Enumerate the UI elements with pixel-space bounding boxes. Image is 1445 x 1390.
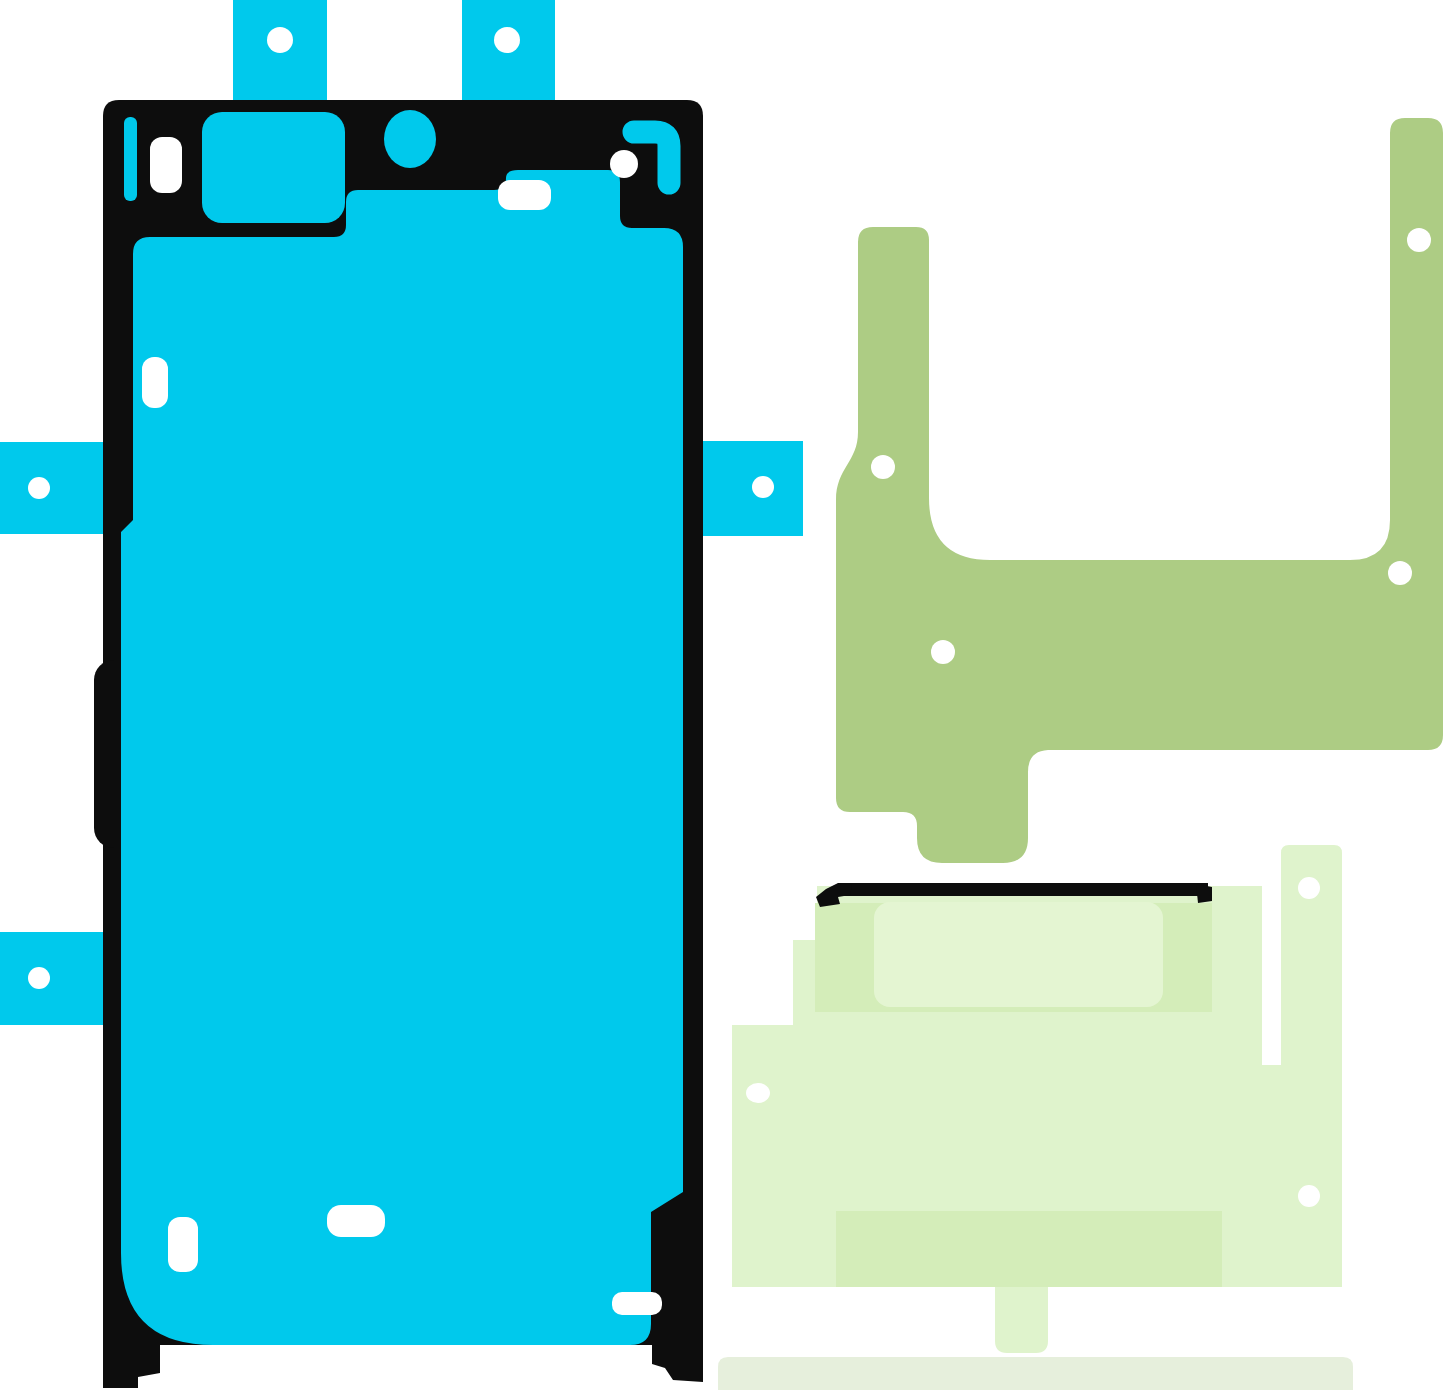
display-adhesive-sticker: [0, 0, 803, 1388]
frame-hole: [1388, 561, 1412, 585]
frame-hole: [931, 640, 955, 664]
camera-hole: [384, 110, 436, 168]
sheet-bar-hook-right: [1196, 884, 1212, 903]
adhesive-pull-strip: [718, 1357, 1353, 1390]
alignment-hole: [610, 150, 638, 178]
earpiece-slot: [124, 117, 137, 201]
frame-hole: [871, 455, 895, 479]
adhesive-kit-illustration: [0, 0, 1445, 1390]
interior-cutout: [327, 1205, 385, 1237]
frame-hole: [1407, 228, 1431, 252]
left-tab-upper: [0, 442, 106, 534]
tab-hole: [752, 476, 774, 498]
right-tab: [700, 441, 803, 536]
product-image: [0, 0, 1445, 1390]
left-tab-lower: [0, 932, 104, 1025]
sheet-top-bar: [838, 883, 1208, 896]
sensor-cutout: [498, 180, 551, 210]
sticker-interior: [121, 170, 683, 1345]
sheet-hole: [1298, 877, 1320, 899]
interior-cutout: [612, 1292, 662, 1315]
inner-layer-bottom: [836, 1211, 1222, 1287]
battery-sheet-column: [1262, 845, 1342, 1287]
tab-hole: [267, 27, 293, 53]
sheet-hole: [746, 1083, 770, 1103]
sticker-foot-left: [103, 1345, 160, 1388]
frame-adhesive-outline: [836, 118, 1443, 863]
interior-cutout: [168, 1217, 198, 1272]
tab-hole: [28, 967, 50, 989]
sticker-foot-right: [652, 1345, 703, 1382]
inner-layer-light: [874, 902, 1163, 1007]
top-tab-right: [462, 0, 555, 106]
sheet-hole: [1298, 1185, 1320, 1207]
tab-hole: [28, 477, 50, 499]
battery-adhesive-sheet: [732, 845, 1342, 1353]
frame-adhesive-bracket: [836, 118, 1443, 863]
sensor-cutout: [150, 137, 182, 193]
interior-cutout: [142, 357, 168, 408]
header-cyan-pocket: [202, 112, 345, 223]
tab-hole: [494, 27, 520, 53]
